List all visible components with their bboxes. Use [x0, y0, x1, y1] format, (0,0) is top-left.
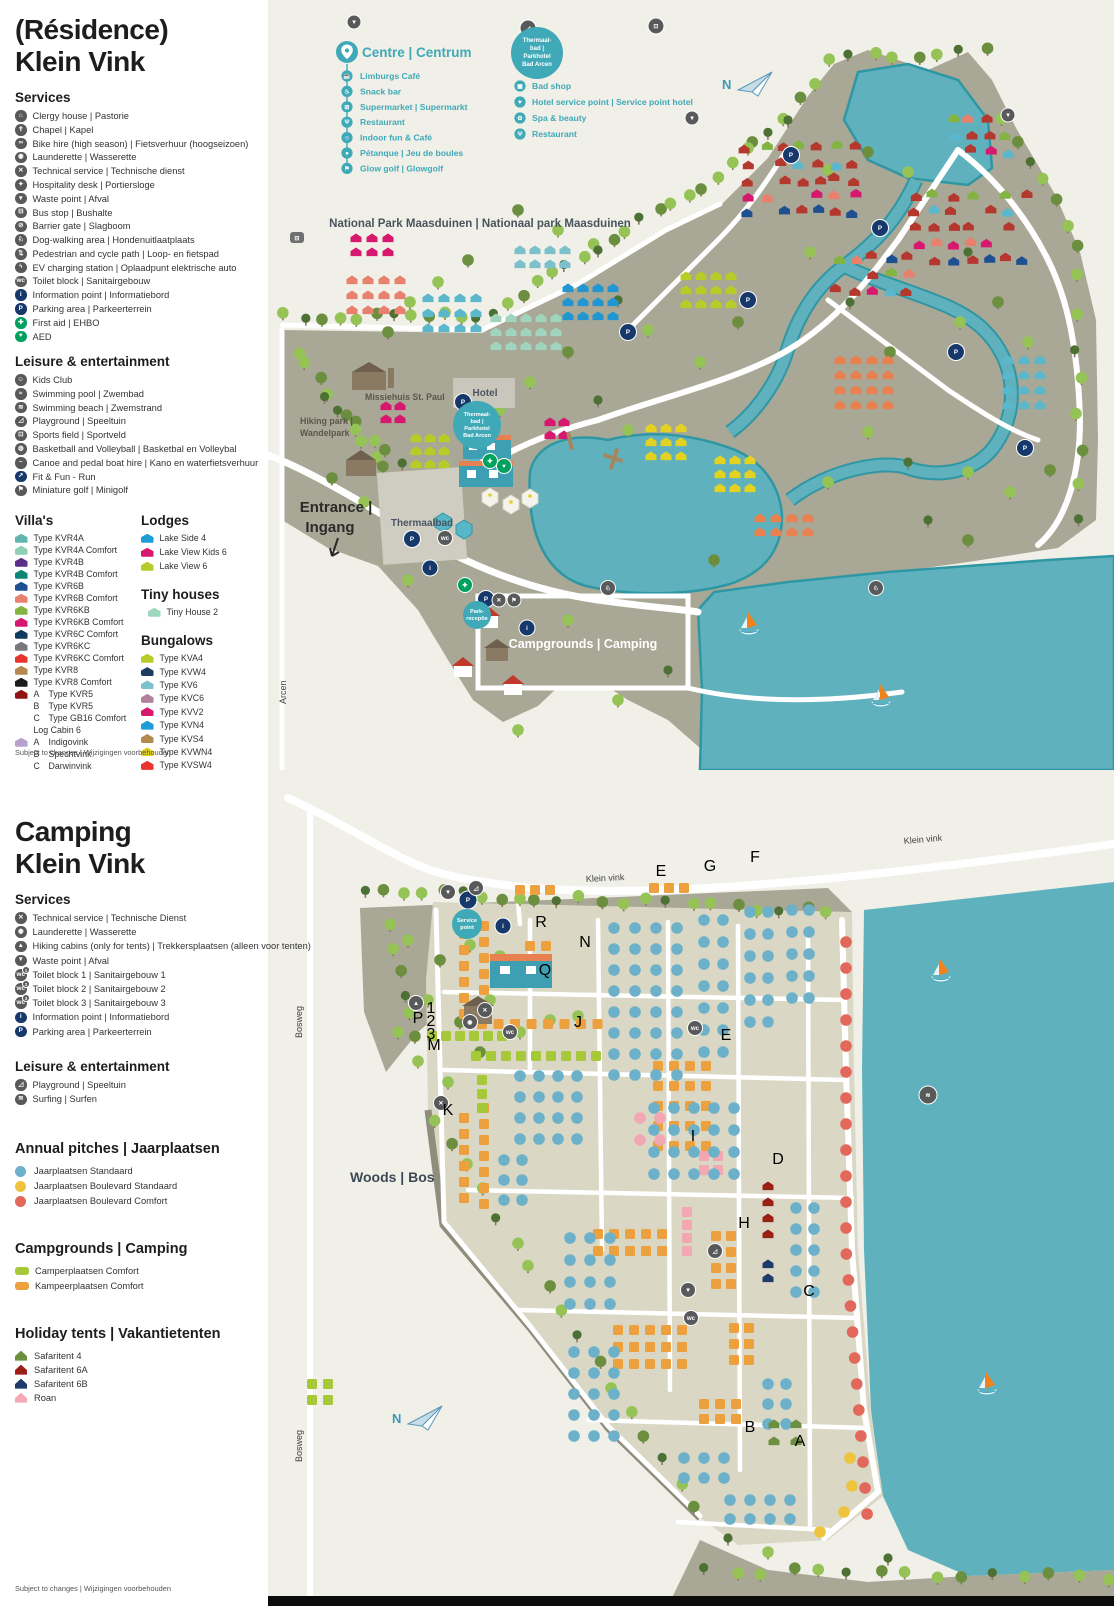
svg-text:i: i	[526, 625, 528, 632]
legend-item: wc Toilet block | Sanitairgebouw	[15, 276, 268, 288]
legend-item: ~ Canoe and pedal boat hire | Kano en wa…	[15, 457, 268, 469]
section-label: R	[535, 914, 547, 931]
playground-icon: ◿	[15, 416, 27, 428]
svg-text:Ψ: Ψ	[344, 119, 349, 126]
svg-text:Restaurant: Restaurant	[360, 117, 405, 127]
svg-text:◿: ◿	[712, 1248, 718, 1255]
svg-text:P: P	[1023, 445, 1027, 452]
legend-item: ▼ Waste point | Afval	[15, 193, 268, 205]
section-label: N	[579, 934, 591, 951]
villa-type-item: Type KVR6KC	[15, 641, 139, 651]
bus-stop-icon: ⊟	[15, 207, 27, 219]
svg-text:♘: ♘	[605, 585, 611, 592]
legend-item: ⊘ Barrier gate | Slagboom	[15, 221, 268, 233]
centre-heading: Centre | Centrum	[362, 45, 472, 60]
svg-text:Glow golf | Glowgolf: Glow golf | Glowgolf	[360, 163, 443, 173]
arcen-road-label: Arcen	[278, 680, 288, 704]
svg-text:P: P	[746, 297, 750, 304]
swatch-icon	[15, 642, 28, 651]
bungalow-type-item: Type KVS4	[141, 734, 271, 744]
waste-point-icon: ▼	[15, 193, 27, 205]
parking-area-icon: P	[15, 303, 27, 315]
svg-text:point: point	[460, 925, 474, 931]
legend-item: ♘ Dog-walking area | Hondenuitlaatplaats	[15, 234, 268, 246]
svg-text:Snack bar: Snack bar	[360, 86, 402, 96]
technical-service-icon: ✕	[492, 593, 506, 607]
legend-item: ≈ Swimming pool | Zwembad	[15, 388, 268, 400]
villa-type-item: Type KVR4A	[15, 533, 139, 543]
swatch-icon	[15, 690, 28, 699]
svg-text:P: P	[626, 329, 630, 336]
camping-title: Camping Klein Vink	[15, 816, 268, 879]
swatch-icon	[148, 608, 161, 617]
svg-text:☕: ☕	[343, 72, 351, 80]
toilet-block-1-icon: wc1	[15, 969, 27, 981]
legend-item: ▲ Hiking cabins (only for tents) | Trekk…	[15, 941, 268, 953]
swatch-icon	[15, 654, 28, 663]
legend-item: ☺ Kids Club	[15, 374, 268, 386]
svg-text:☺: ☺	[344, 135, 350, 142]
campground-type-item: Kampeerplaatsen Comfort	[15, 1280, 268, 1292]
swatch-icon	[15, 606, 28, 615]
camping-leisure-list: ◿ Playground | Speeltuin ≋ Surfing | Sur…	[15, 1079, 268, 1105]
swatch-icon	[15, 582, 28, 591]
maas-water	[698, 556, 1114, 770]
svg-text:Bad Arcen: Bad Arcen	[522, 62, 552, 68]
information-icon: i	[422, 560, 438, 576]
information-point-icon: i	[15, 289, 27, 301]
camping-leisure-heading: Leisure & entertainment	[15, 1059, 268, 1074]
section-label: G	[704, 858, 716, 875]
svg-text:▣: ▣	[517, 83, 523, 90]
camping-map: Pi▼◿▲✕◉wc✕wc▼wc◿≋ Service point Klein vi…	[268, 770, 1114, 1606]
svg-text:Restaurant: Restaurant	[532, 129, 577, 139]
campground-type-item: Camperplaatsen Comfort	[15, 1265, 268, 1277]
svg-text:bad |: bad |	[470, 419, 483, 425]
svg-text:⊟: ⊟	[294, 235, 299, 242]
svg-text:▼: ▼	[445, 889, 451, 896]
camping-services-list: ✕ Technical service | Technische Dienst …	[15, 912, 268, 1037]
swimming-beach-icon: ≋	[15, 402, 27, 414]
dog-walking-icon: ♘	[869, 581, 884, 596]
section-label: H	[738, 1215, 750, 1232]
swatch-icon	[15, 726, 28, 735]
swatch-icon	[15, 702, 28, 711]
svg-text:♥: ♥	[502, 463, 506, 470]
camping-section: Camping Klein Vink Services ✕ Technical …	[0, 770, 1114, 1606]
villa-type-item: Type KVR6B Comfort	[15, 593, 139, 603]
bosweg-road-label-2: Bosweg	[294, 1430, 304, 1462]
woods-label: Woods | Bos	[350, 1169, 435, 1185]
swatch-icon	[15, 678, 28, 687]
residence-map: PPPPPPPPPii✚♥✚✕⚑wc♘▼▼◿⊡♘▼⊟ National Park…	[268, 0, 1114, 770]
swatch-icon	[15, 534, 28, 543]
parking-icon: P	[948, 344, 965, 361]
surfing-icon: ≋	[919, 1086, 937, 1104]
residence-services-list: ⌂ Clergy house | Pastorie ✝ Chapel | Kap…	[15, 110, 268, 342]
svg-text:✚: ✚	[487, 458, 492, 465]
swatch-icon	[141, 562, 154, 571]
bottom-bar	[155, 1596, 1114, 1606]
swatch-icon	[141, 534, 154, 543]
legend-item: ⇅ Pedestrian and cycle path | Loop- en f…	[15, 248, 268, 260]
waste-point-icon: ▼	[1001, 108, 1015, 122]
villa-type-item: Type KVR4B Comfort	[15, 569, 139, 579]
swatch-icon	[141, 761, 154, 770]
svg-text:Supermarket | Supermarkt: Supermarket | Supermarkt	[360, 102, 468, 112]
waste-point-icon: ▼	[15, 955, 27, 967]
legend-item: P Parking area | Parkeerterrein	[15, 1026, 268, 1038]
legend-item: ◿ Playground | Speeltuin	[15, 416, 268, 428]
thermaalbad-label: Thermaalbad	[391, 518, 453, 529]
services-heading: Services	[15, 90, 268, 105]
section-label: Q	[539, 962, 551, 979]
section-label: 3	[427, 1026, 436, 1043]
legend-item: ◍ Basketball and Volleyball | Basketbal …	[15, 443, 268, 455]
swatch-icon	[15, 1351, 27, 1361]
miniature-golf-icon: ⚑	[507, 593, 521, 607]
svg-text:P: P	[954, 349, 958, 356]
pedestrian-cycle-path-icon: ⇅	[15, 248, 27, 260]
legend-item: ◉ Launderette | Wasserette	[15, 152, 268, 164]
svg-text:receptie: receptie	[466, 616, 487, 622]
pitch-type-item: Jaarplaatsen Standaard	[15, 1165, 268, 1177]
svg-text:Thermaal-: Thermaal-	[464, 412, 491, 418]
villa-type-item: Type KVR6C Comfort	[15, 629, 139, 639]
toilet-block-3-icon: wc3	[15, 997, 27, 1009]
legend-item: P Parking area | Parkeerterrein	[15, 303, 268, 315]
sports-field-icon: ⊡	[648, 18, 664, 34]
swatch-icon	[15, 738, 28, 747]
legend-item: wc2 Toilet block 2 | Sanitairgebouw 2	[15, 983, 268, 995]
fit-fun-run-icon: ➚	[15, 471, 27, 483]
legend-item: i Information point | Informatiebord	[15, 289, 268, 301]
launderette-icon: ◉	[15, 152, 27, 164]
legend-item: ➚ Fit & Fun - Run	[15, 471, 268, 483]
lodge-type-item: Lake View 6	[141, 561, 271, 571]
section-label: A	[795, 1433, 806, 1450]
toilet-block-1-icon: wc	[688, 1021, 703, 1036]
villa-type-item: Type KVR8 Comfort	[15, 677, 139, 687]
legend-item: ✚ First aid | EHBO	[15, 317, 268, 329]
waste-point-icon: ▼	[681, 1283, 696, 1298]
tent-type-item: Safaritent 6A	[15, 1364, 268, 1375]
launderette-icon: ◉	[15, 926, 27, 938]
svg-text:⊡: ⊡	[653, 23, 658, 30]
swatch-icon	[15, 1282, 29, 1290]
barrier-gate-icon: ⊘	[15, 221, 27, 233]
villa-type-item: Log Cabin 6	[15, 725, 139, 735]
lodge-type-item: Lake Side 4	[141, 533, 271, 543]
waste-point-icon: ▼	[441, 885, 456, 900]
parking-icon: P	[1017, 440, 1034, 457]
swatch-icon	[141, 721, 154, 730]
swatch-icon	[141, 694, 154, 703]
dog-walking-icon: ♘	[601, 581, 616, 596]
svg-text:P: P	[878, 225, 882, 232]
park-map-page: (Résidence) Klein Vink Services ⌂ Clergy…	[0, 0, 1114, 1606]
svg-text:Ingang: Ingang	[305, 519, 354, 536]
legend-item: ◉ Launderette | Wasserette	[15, 926, 268, 938]
legend-item: ✦ Hospitality desk | Portiersloge	[15, 179, 268, 191]
parking-icon: P	[404, 531, 421, 548]
surfing-icon: ≋	[15, 1094, 27, 1106]
canoe-pedal-boat-hire-icon: ~	[15, 457, 27, 469]
villa-type-item: A Type KVR5	[15, 689, 139, 699]
svg-text:wc: wc	[686, 1315, 696, 1322]
svg-text:▼: ▼	[685, 1287, 691, 1294]
lodges-heading: Lodges	[141, 513, 271, 528]
information-icon: i	[519, 620, 535, 636]
national-park-label: National Park Maasduinen | Nationaal par…	[329, 218, 631, 230]
chapel-icon: ✝	[15, 124, 27, 136]
swatch-icon	[15, 618, 28, 627]
parking-icon: P	[783, 147, 800, 164]
legend-item: ⌂ Clergy house | Pastorie	[15, 110, 268, 122]
lake-water	[862, 882, 1114, 1576]
section-label: B	[745, 1419, 756, 1436]
villa-type-item: Type KVR8	[15, 665, 139, 675]
swatch-icon	[15, 1393, 27, 1403]
bosweg-road-label: Bosweg	[294, 1006, 304, 1038]
residence-disclaimer: Subject to changes | Wijzigingen voorbeh…	[15, 748, 171, 757]
svg-text:Limburgs Café: Limburgs Café	[360, 71, 420, 81]
swatch-icon	[141, 680, 154, 689]
swatch-icon	[15, 570, 28, 579]
camping-map-svg: Pi▼◿▲✕◉wc✕wc▼wc◿≋ Service point Klein vi…	[268, 770, 1114, 1606]
toilet-block-2-icon: wc	[684, 1311, 699, 1326]
swatch-icon	[15, 1267, 29, 1275]
hiking-cabins-icon: ▲	[15, 941, 27, 953]
bungalows-list: Type KVA4 Type KVW4 Type KV6	[141, 653, 271, 784]
section-label: D	[772, 1151, 784, 1168]
legend-item: ⊟ Bus stop | Bushalte	[15, 207, 268, 219]
park-receptie-circle: Park- receptie	[463, 601, 491, 629]
svg-text:✕: ✕	[496, 597, 501, 604]
residence-sidebar: (Résidence) Klein Vink Services ⌂ Clergy…	[0, 0, 268, 770]
lodges-list: Lake Side 4 Lake View Kids 6 Lake View 6	[141, 533, 271, 571]
leisure-heading: Leisure & entertainment	[15, 354, 268, 369]
clergy-house-icon: ⌂	[15, 110, 27, 122]
svg-text:⊞: ⊞	[344, 104, 349, 111]
legend-item: ▼ Waste point | Afval	[15, 955, 268, 967]
svg-text:Bad shop: Bad shop	[532, 81, 571, 91]
klein-vink-road-label: Klein vink	[586, 872, 625, 884]
svg-text:P: P	[410, 536, 414, 543]
svg-text:Ψ: Ψ	[517, 131, 522, 138]
launderette-icon: ◉	[463, 1015, 478, 1030]
missiehuis-label: Missiehuis St. Paul	[365, 392, 445, 402]
svg-text:✿: ✿	[517, 115, 522, 122]
annual-pitches-heading: Annual pitches | Jaarplaatsen	[15, 1141, 268, 1157]
svg-text:▼: ▼	[1005, 112, 1011, 119]
svg-text:bad |: bad |	[530, 46, 544, 52]
toilet-block-2-icon: wc2	[15, 983, 27, 995]
svg-text:Park-: Park-	[470, 609, 484, 615]
swatch-icon	[15, 1379, 27, 1389]
aed-icon: ♥	[15, 331, 27, 343]
svg-text:wc: wc	[505, 1029, 515, 1036]
legend-item: ∞ Bike hire (high season) | Fietsverhuur…	[15, 138, 268, 150]
tent-type-item: Safaritent 6B	[15, 1378, 268, 1389]
information-icon: i	[495, 918, 511, 934]
kids-club-icon: ☺	[15, 374, 27, 386]
tent-type-item: Safaritent 4	[15, 1350, 268, 1361]
campgrounds-label: Campgrounds | Camping	[509, 637, 658, 651]
parking-area-icon: P	[15, 1026, 27, 1038]
dog-walking-area-icon: ♘	[15, 234, 27, 246]
technical-service-icon: ✕	[15, 165, 27, 177]
entrance-label: Entrance |	[300, 499, 373, 516]
svg-text:P: P	[466, 897, 470, 904]
bungalow-type-item: Type KV6	[141, 680, 271, 690]
legend-item: ✝ Chapel | Kapel	[15, 124, 268, 136]
svg-text:▼: ▼	[689, 115, 695, 122]
swatch-icon	[141, 667, 154, 676]
tiny-house-item: Tiny House 2	[148, 607, 271, 617]
swatch-icon	[15, 1166, 26, 1177]
section-label: E	[721, 1027, 732, 1044]
bungalow-type-item: Type KVN4	[141, 720, 271, 730]
service-point-circle: Service point	[452, 909, 482, 939]
swatch-icon	[15, 1365, 27, 1375]
villa-type-item: Type KVR6KB Comfort	[15, 617, 139, 627]
ev-charging-station-icon: ϟ	[15, 262, 27, 274]
legend-item: i Information point | Informatiebord	[15, 1012, 268, 1024]
legend-item: ✕ Technical service | Technische dienst	[15, 165, 268, 177]
villa-type-item: Type KVR6KB	[15, 605, 139, 615]
camping-disclaimer: Subject to changes | Wijzigingen voorbeh…	[15, 1584, 171, 1593]
legend-item: ✕ Technical service | Technische Dienst	[15, 912, 268, 924]
holiday-tents-list: Safaritent 4 Safaritent 6A Safaritent 6B	[15, 1350, 268, 1403]
lodge-type-item: Lake View Kids 6	[141, 547, 271, 557]
waste-point-icon: ▼	[685, 111, 699, 125]
hotel-label: Hotel	[473, 388, 498, 399]
villa-type-item: Type KVR4A Comfort	[15, 545, 139, 555]
toilet-block-icon: wc	[438, 531, 453, 546]
svg-text:Hotel service point | Service: Hotel service point | Service point hote…	[532, 97, 693, 107]
swatch-icon	[15, 594, 28, 603]
villa-type-item: B Type KVR5	[15, 701, 139, 711]
hiking-cabins-icon: ▲	[409, 996, 424, 1011]
villa-type-item: A Indigovink	[15, 737, 139, 747]
thermaalbad-area	[377, 467, 467, 565]
svg-text:P: P	[484, 596, 488, 603]
bungalow-type-item: Type KVA4	[141, 653, 271, 663]
svg-text:≋: ≋	[925, 1092, 930, 1099]
waste-point-icon: ▼	[347, 15, 361, 29]
bungalows-heading: Bungalows	[141, 633, 271, 648]
swatch-icon	[15, 714, 28, 723]
tiny-houses-heading: Tiny houses	[141, 587, 271, 602]
swatch-icon	[141, 734, 154, 743]
playground-icon: ◿	[469, 881, 484, 896]
legend-item: ◿ Playground | Speeltuin	[15, 1079, 268, 1091]
bungalow-type-item: Type KVC6	[141, 693, 271, 703]
swatch-icon	[15, 558, 28, 567]
swatch-icon	[15, 1196, 26, 1207]
parking-icon: P	[620, 324, 637, 341]
swatch-icon	[141, 654, 154, 663]
sports-field-icon: ⊡	[15, 430, 27, 442]
legend-item: ⊡ Sports field | Sportveld	[15, 429, 268, 441]
technical-service-icon: ✕	[15, 912, 27, 924]
svg-text:▼: ▼	[351, 19, 357, 26]
svg-text:N: N	[392, 1411, 401, 1426]
tent-type-item: Roan	[15, 1392, 268, 1403]
svg-text:✕: ✕	[482, 1007, 487, 1014]
swatch-icon	[15, 1181, 26, 1192]
svg-text:Service: Service	[457, 918, 477, 924]
svg-text:◿: ◿	[473, 885, 479, 892]
svg-text:Parkhotel: Parkhotel	[464, 426, 490, 432]
svg-text:Pétanque | Jeu de boules: Pétanque | Jeu de boules	[360, 148, 463, 158]
playground-icon: ◿	[708, 1244, 723, 1259]
legend-item: ≋ Surfing | Surfen	[15, 1094, 268, 1106]
section-label: E	[656, 863, 667, 880]
technical-service-icon: ✕	[478, 1003, 493, 1018]
section-label: C	[803, 1283, 815, 1300]
svg-text:⚑: ⚑	[344, 165, 350, 172]
villa-type-item: Type KVR6B	[15, 581, 139, 591]
hiking-park-label: Hiking park |	[300, 416, 353, 426]
svg-text:✚: ✚	[462, 582, 467, 589]
legend-item: ⚑ Miniature golf | Minigolf	[15, 485, 268, 497]
holiday-tents-heading: Holiday tents | Vakantietenten	[15, 1326, 268, 1342]
villas-heading: Villa's	[15, 513, 139, 528]
legend-item: ♥ AED	[15, 331, 268, 343]
svg-text:Spa & beauty: Spa & beauty	[532, 113, 587, 123]
pitch-type-item: Jaarplaatsen Boulevard Standaard	[15, 1180, 268, 1192]
swimming-pool-icon: ≈	[15, 388, 27, 400]
svg-text:Parkhotel: Parkhotel	[523, 54, 551, 60]
svg-text:▲: ▲	[413, 1000, 419, 1007]
svg-text:♨: ♨	[344, 88, 350, 95]
swatch-icon	[141, 707, 154, 716]
residence-leisure-list: ☺ Kids Club ≈ Swimming pool | Zwembad ≋ …	[15, 374, 268, 496]
bungalow-type-item: Type KVSW4	[141, 760, 271, 770]
first-aid-icon: ✚	[15, 317, 27, 329]
swatch-icon	[141, 548, 154, 557]
toilet-block-3-icon: wc	[503, 1025, 518, 1040]
svg-text:Indoor fun & Café: Indoor fun & Café	[360, 133, 432, 143]
section-label: K	[443, 1102, 454, 1119]
residence-title: (Résidence) Klein Vink	[15, 14, 268, 77]
camping-sidebar: Camping Klein Vink Services ✕ Technical …	[0, 770, 268, 1606]
playground-icon: ◿	[15, 1079, 27, 1091]
legend-item: ≋ Swimming beach | Zwemstrand	[15, 402, 268, 414]
svg-text:N: N	[722, 77, 731, 92]
svg-text:✦: ✦	[517, 99, 522, 106]
legend-item: ϟ EV charging station | Oplaadpunt elekt…	[15, 262, 268, 274]
svg-text:i: i	[429, 565, 431, 572]
information-point-icon: i	[15, 1012, 27, 1024]
villa-type-item: Type KVR4B	[15, 557, 139, 567]
pitch-type-item: Jaarplaatsen Boulevard Comfort	[15, 1195, 268, 1207]
miniature-golf-icon: ⚑	[15, 485, 27, 497]
svg-text:Wandelpark: Wandelpark	[300, 428, 350, 438]
svg-text:Thermaal-: Thermaal-	[523, 38, 552, 44]
first-aid-icon: ✚	[483, 454, 498, 469]
toilet-block-icon: wc	[15, 276, 27, 288]
legend-item: wc3 Toilet block 3 | Sanitairgebouw 3	[15, 997, 268, 1009]
section-label: P	[413, 1010, 424, 1027]
swatch-icon	[15, 630, 28, 639]
swatch-icon	[15, 666, 28, 675]
svg-text:⚑: ⚑	[511, 597, 517, 604]
campgrounds-heading: Campgrounds | Camping	[15, 1241, 268, 1257]
first-aid-icon: ✚	[458, 578, 473, 593]
